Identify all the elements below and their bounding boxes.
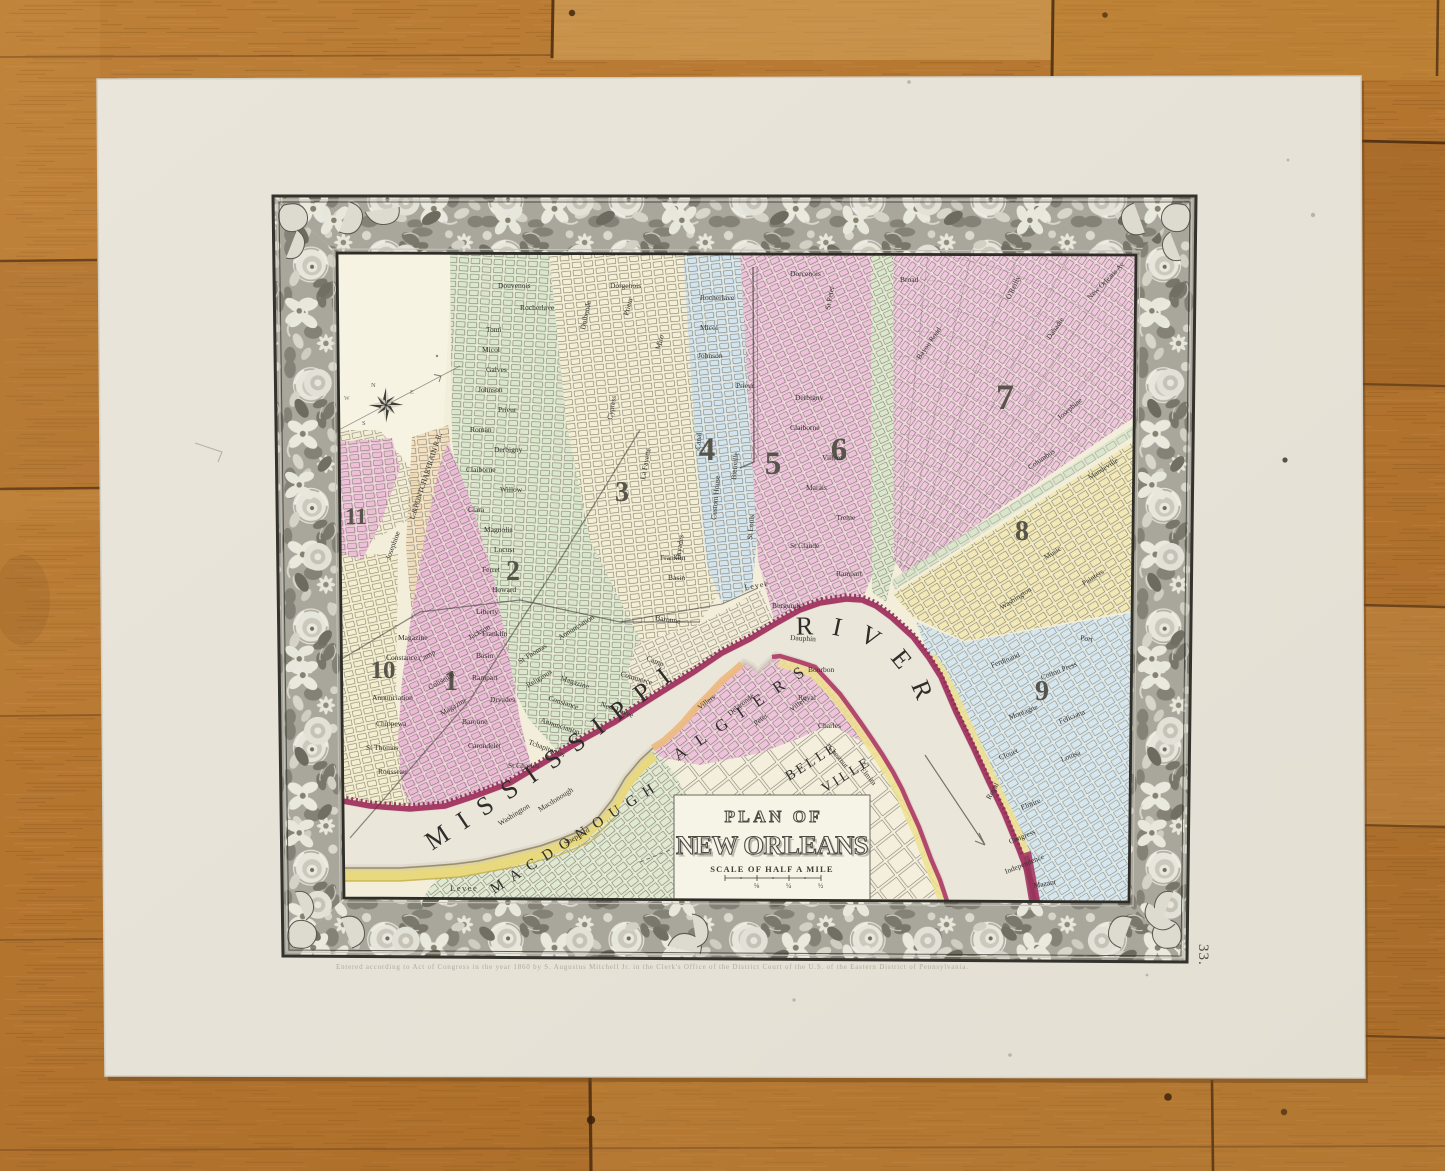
svg-text:Micol: Micol bbox=[700, 323, 718, 332]
svg-text:Prieur: Prieur bbox=[736, 381, 755, 390]
svg-text:Derbigny: Derbigny bbox=[494, 445, 523, 454]
svg-text:7: 7 bbox=[996, 377, 1014, 417]
svg-text:SCALE OF HALF A MILE: SCALE OF HALF A MILE bbox=[710, 864, 834, 874]
svg-text:Clara: Clara bbox=[468, 505, 485, 514]
svg-text:½: ½ bbox=[818, 882, 823, 890]
svg-text:Galves: Galves bbox=[486, 365, 507, 374]
svg-text:Basin: Basin bbox=[668, 573, 685, 582]
svg-text:NEW ORLEANS: NEW ORLEANS bbox=[676, 830, 868, 860]
svg-text:Rampart: Rampart bbox=[472, 673, 499, 682]
svg-text:Claiborne: Claiborne bbox=[466, 465, 496, 474]
svg-text:St Thomas: St Thomas bbox=[366, 743, 398, 752]
svg-text:Locust: Locust bbox=[494, 545, 515, 554]
svg-text:Marais: Marais bbox=[806, 483, 827, 492]
svg-text:Tonti: Tonti bbox=[486, 325, 502, 334]
svg-text:N: N bbox=[371, 382, 376, 389]
svg-text:Rampart: Rampart bbox=[836, 569, 863, 578]
svg-text:33.: 33. bbox=[1195, 944, 1211, 966]
svg-text:Basin: Basin bbox=[476, 651, 493, 660]
svg-text:6: 6 bbox=[831, 432, 848, 468]
svg-text:Villere: Villere bbox=[822, 453, 843, 462]
svg-text:Broad: Broad bbox=[900, 275, 919, 284]
svg-text:Franklin: Franklin bbox=[660, 553, 686, 562]
svg-text:Claiborne: Claiborne bbox=[790, 423, 820, 432]
svg-text:⅛: ⅛ bbox=[754, 882, 760, 890]
svg-text:Liberty: Liberty bbox=[476, 607, 498, 616]
svg-text:Baronne: Baronne bbox=[462, 717, 488, 726]
svg-text:Chippewa: Chippewa bbox=[376, 719, 407, 728]
svg-text:3: 3 bbox=[615, 477, 629, 508]
svg-text:Constance: Constance bbox=[386, 653, 418, 662]
svg-text:PLAN OF: PLAN OF bbox=[725, 807, 824, 826]
svg-text:5: 5 bbox=[765, 446, 782, 482]
svg-text:Levee: Levee bbox=[450, 883, 478, 893]
svg-text:¼: ¼ bbox=[786, 882, 791, 890]
svg-text:Canal: Canal bbox=[693, 432, 703, 450]
svg-text:Port: Port bbox=[1080, 633, 1095, 644]
svg-text:Burgundy: Burgundy bbox=[772, 601, 802, 610]
svg-text:S: S bbox=[362, 420, 366, 427]
svg-text:Micol: Micol bbox=[482, 345, 500, 354]
svg-text:2: 2 bbox=[506, 556, 520, 587]
svg-text:Dorcenois: Dorcenois bbox=[790, 269, 821, 278]
svg-text:W: W bbox=[344, 396, 350, 402]
svg-text:Dauphin: Dauphin bbox=[790, 633, 817, 643]
svg-text:Annunciation: Annunciation bbox=[372, 693, 413, 702]
svg-text:Magazine: Magazine bbox=[398, 633, 428, 642]
svg-text:Douvenois: Douvenois bbox=[498, 281, 531, 290]
svg-text:Dryades: Dryades bbox=[490, 695, 515, 704]
svg-text:E: E bbox=[410, 390, 414, 396]
svg-text:Charles: Charles bbox=[818, 721, 841, 730]
svg-text:Willow: Willow bbox=[500, 485, 523, 494]
svg-text:Magnolia: Magnolia bbox=[484, 525, 513, 534]
svg-text:Carondelet: Carondelet bbox=[468, 741, 502, 750]
svg-text:Treme: Treme bbox=[836, 513, 856, 522]
svg-text:Rousseau: Rousseau bbox=[378, 767, 407, 776]
svg-text:Ferret: Ferret bbox=[482, 565, 501, 574]
svg-text:Roman: Roman bbox=[470, 425, 492, 434]
svg-text:8: 8 bbox=[1015, 516, 1029, 547]
svg-text:Johnson: Johnson bbox=[698, 351, 723, 360]
svg-text:St Claude: St Claude bbox=[790, 541, 820, 550]
svg-text:St Charles: St Charles bbox=[508, 761, 539, 770]
svg-text:Prieur: Prieur bbox=[498, 405, 517, 414]
svg-text:Derbigny: Derbigny bbox=[795, 393, 824, 402]
svg-text:Rocherlave: Rocherlave bbox=[520, 303, 555, 312]
svg-text:Howard: Howard bbox=[492, 585, 516, 594]
svg-text:Entered according to Act of Co: Entered according to Act of Congress in … bbox=[336, 963, 969, 971]
svg-text:Dorgenois: Dorgenois bbox=[610, 281, 641, 290]
svg-text:Rocherlave: Rocherlave bbox=[700, 293, 735, 302]
svg-text:11: 11 bbox=[345, 504, 367, 529]
svg-text:Johnson: Johnson bbox=[478, 385, 503, 394]
svg-text:Bourbon: Bourbon bbox=[808, 665, 835, 674]
